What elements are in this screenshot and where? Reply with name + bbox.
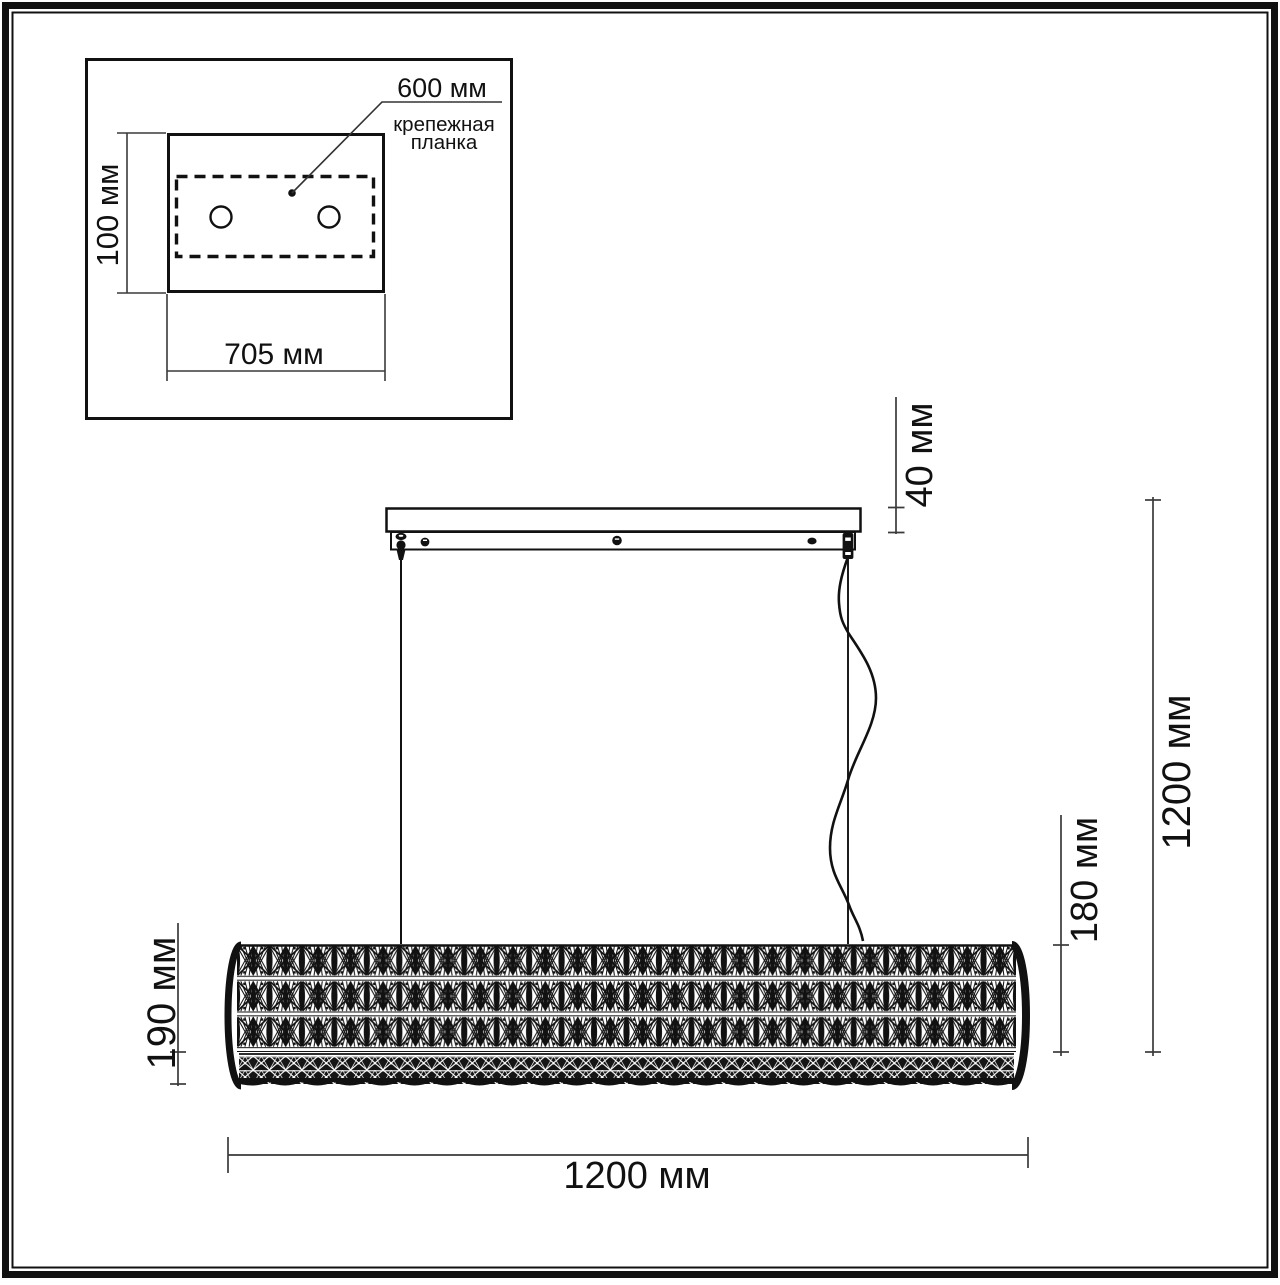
crystal-shade bbox=[228, 945, 1026, 1086]
mounting-hole-left bbox=[211, 207, 232, 228]
wire-grip-right bbox=[843, 533, 854, 559]
dim-180mm-label: 180 мм bbox=[1064, 817, 1106, 943]
dim-190mm-label: 190 мм bbox=[140, 937, 184, 1070]
canopy-screw bbox=[421, 538, 430, 547]
suspension-left bbox=[396, 533, 407, 944]
canopy-screw bbox=[807, 538, 816, 545]
crystal-band bbox=[237, 945, 1016, 1052]
mounting-hole-right bbox=[319, 207, 340, 228]
dim-1200mm-vertical-label: 1200 мм bbox=[1155, 694, 1199, 849]
inset-panel: 600 мм крепежная планка 100 мм 705 мм bbox=[87, 60, 512, 419]
suspension-right bbox=[830, 533, 876, 944]
dim-100mm-label: 100 мм bbox=[90, 164, 125, 267]
label-600mm: 600 мм bbox=[397, 73, 487, 103]
mount-plate-top-view bbox=[169, 135, 384, 292]
fringe-scallop-edge bbox=[233, 1078, 1014, 1086]
dim-40mm-label: 40 мм bbox=[899, 402, 941, 507]
power-cable bbox=[830, 557, 876, 941]
canopy-bar bbox=[387, 509, 861, 550]
canopy-screw bbox=[612, 536, 622, 546]
label-mounting-plate-line2: планка bbox=[411, 131, 478, 154]
pendant-side-view: 40 мм 1200 мм 180 мм 190 мм 1200 мм bbox=[140, 397, 1199, 1197]
dimension-drawing: 600 мм крепежная планка 100 мм 705 мм bbox=[0, 0, 1280, 1280]
dim-1200mm-horizontal-label: 1200 мм bbox=[563, 1155, 710, 1197]
dim-705mm-label: 705 мм bbox=[224, 338, 324, 371]
